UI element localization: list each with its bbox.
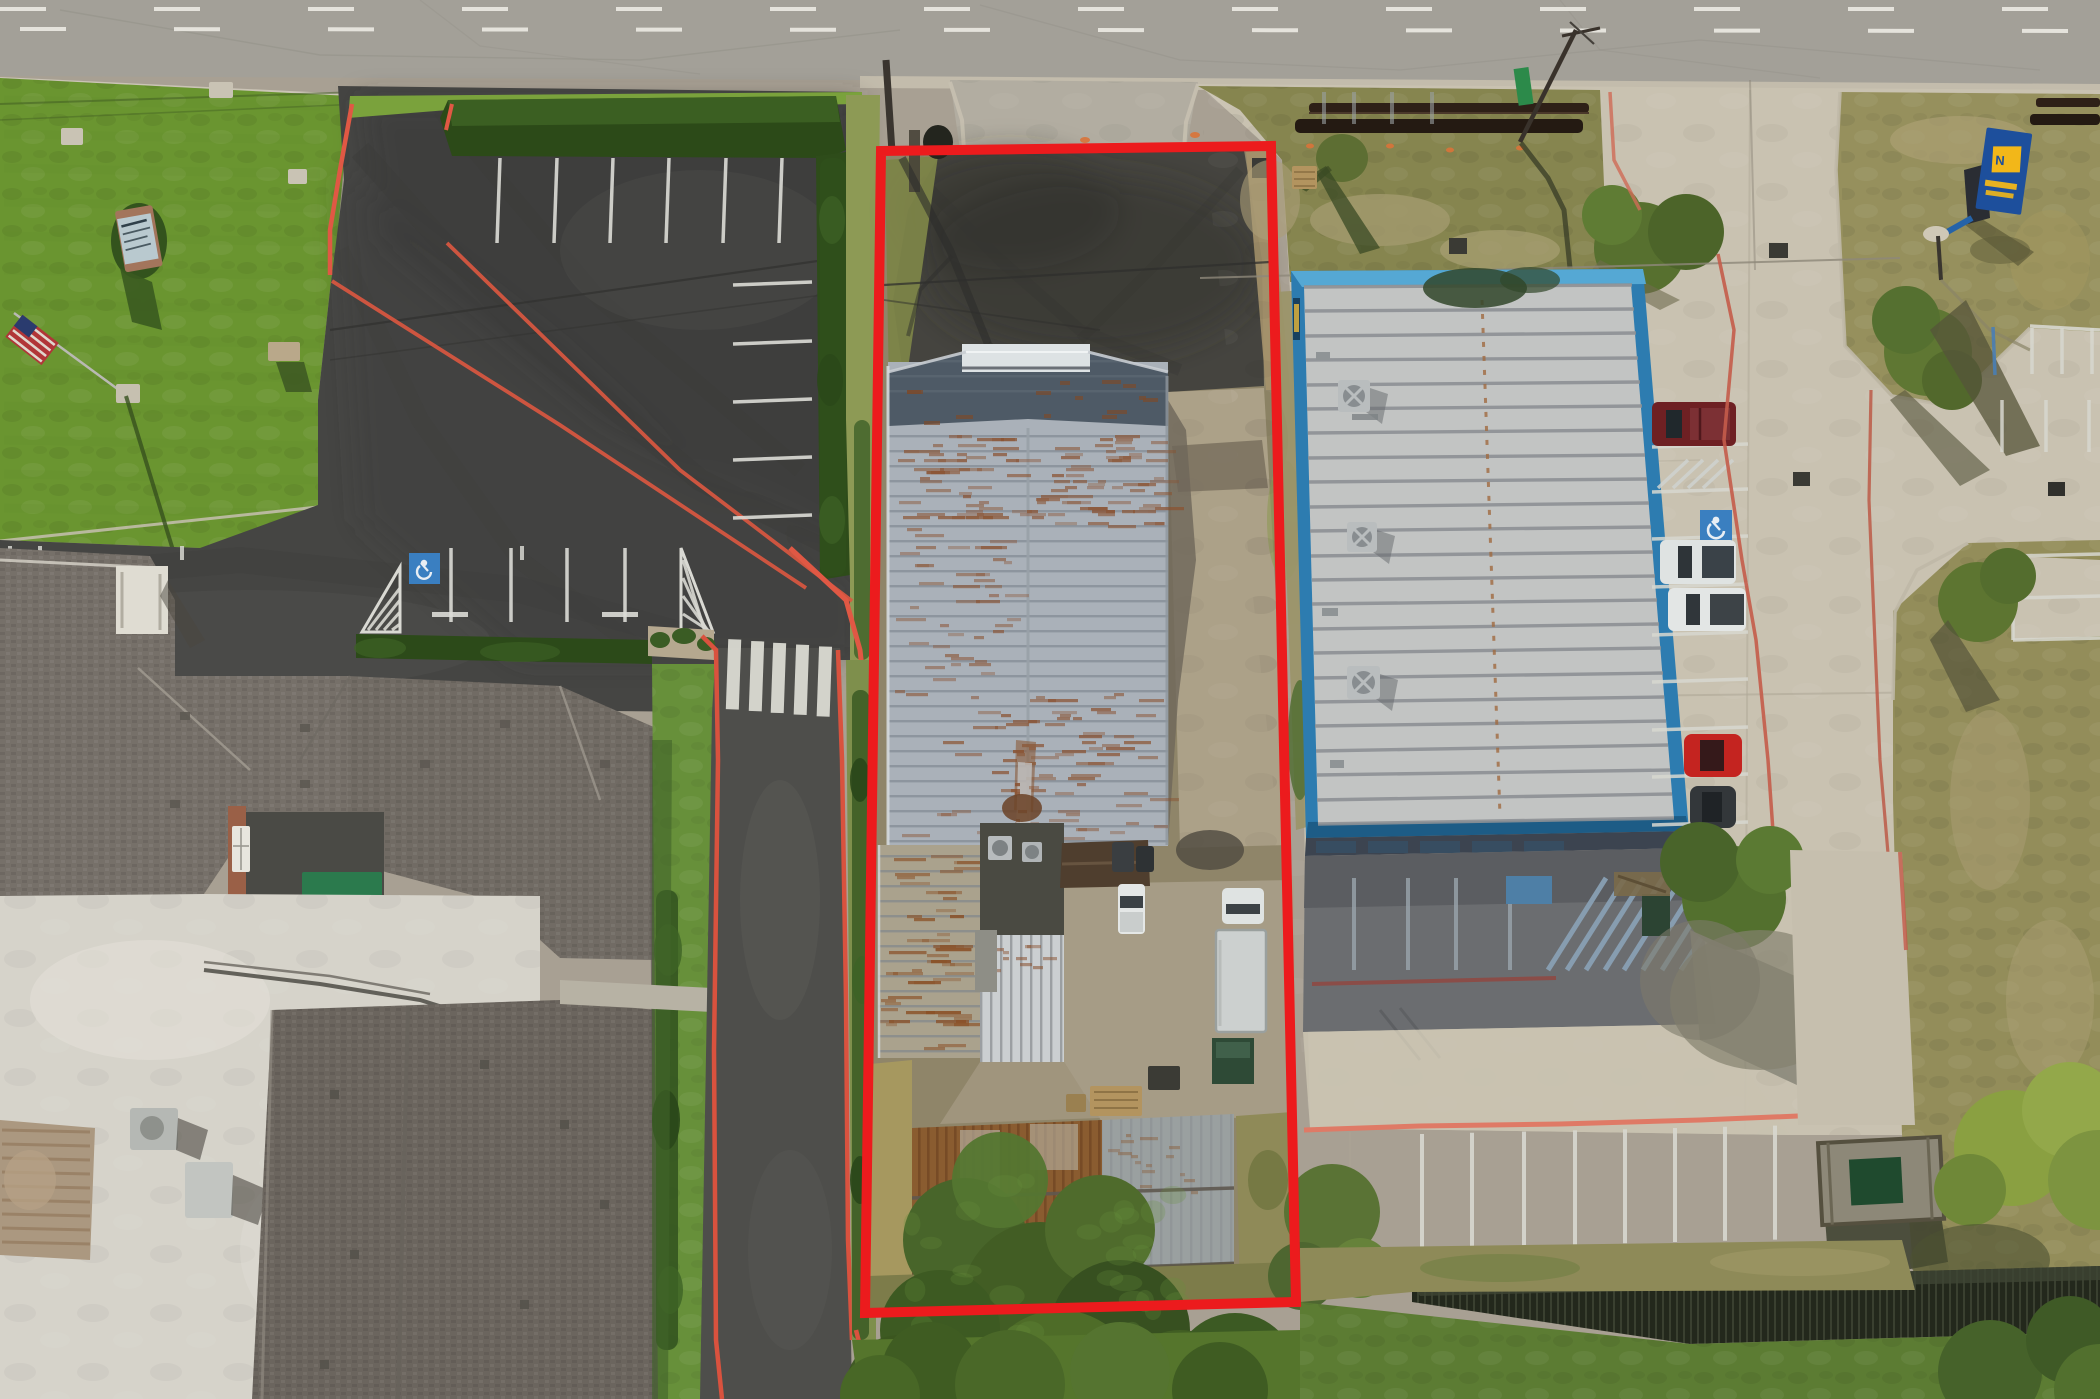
- svg-text:N: N: [1995, 153, 2005, 169]
